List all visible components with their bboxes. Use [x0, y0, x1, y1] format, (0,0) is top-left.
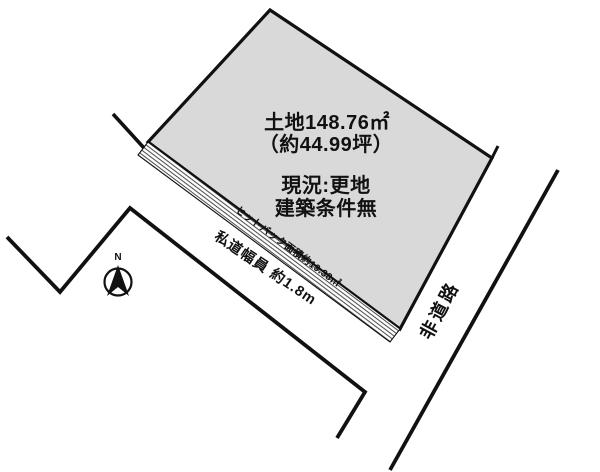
neighbor-boundary-line [113, 114, 144, 148]
parcel-corner-tick [492, 146, 498, 158]
parcel-status-label: 現況:更地 [281, 173, 370, 197]
parcel-area-tsubo-label: （約44.99坪） [259, 132, 394, 156]
compass-north-label: N [114, 252, 121, 263]
compass: N [105, 252, 132, 296]
plot-drawing: N 土地148.76㎡ （約44.99坪） 現況:更地 建築条件無 セットバック… [0, 0, 600, 472]
land-plot-diagram: N 土地148.76㎡ （約44.99坪） 現況:更地 建築条件無 セットバック… [0, 0, 600, 472]
parcel-area-label: 土地148.76㎡ [264, 110, 390, 134]
parcel-condition-label: 建築条件無 [275, 196, 378, 220]
